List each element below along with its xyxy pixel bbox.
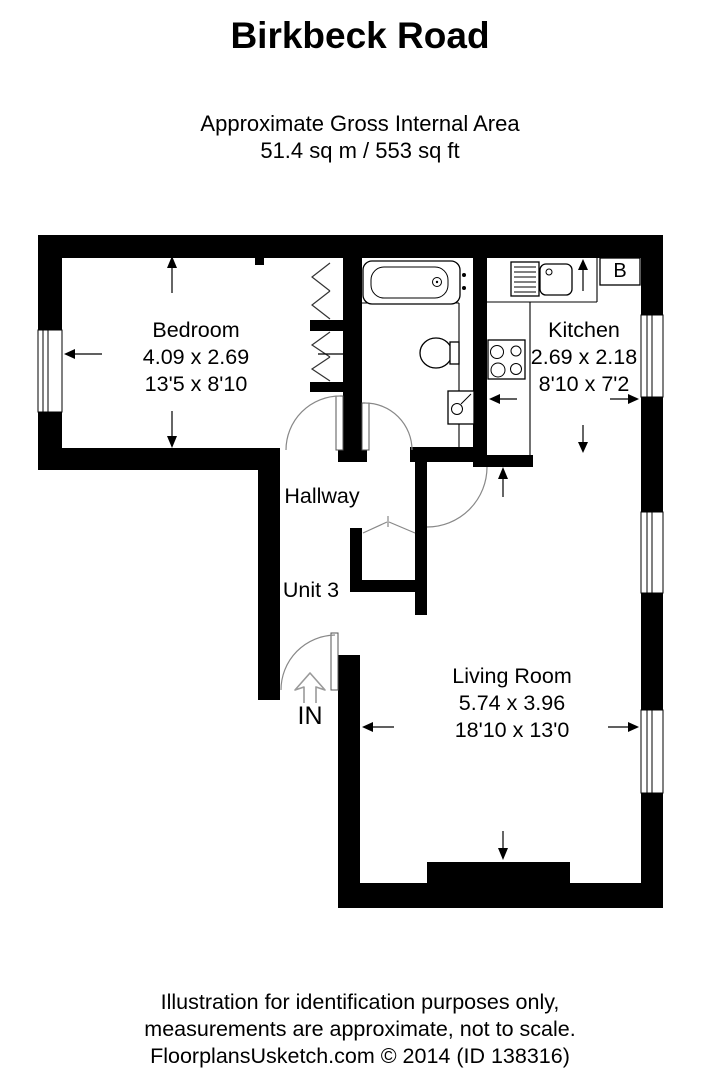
bedroom-metric: 4.09 x 2.69 <box>143 345 249 369</box>
toilet-bowl <box>420 338 452 368</box>
bathtub-drain-dot <box>436 281 438 283</box>
wall-hall-living-bar <box>487 455 533 467</box>
footer-line3: FloorplansUsketch.com © 2014 (ID 138316) <box>150 1044 570 1068</box>
chimney-breast <box>427 862 570 883</box>
boiler-label: B <box>613 260 626 282</box>
wall-right-mid1 <box>641 397 663 512</box>
wall-nub <box>255 257 264 265</box>
kitchen-sink <box>540 264 572 295</box>
wall-living-left <box>338 655 360 903</box>
wall-corridor-left <box>258 470 280 700</box>
room-labels: Bedroom 4.09 x 2.69 13'5 x 8'10 Kitchen … <box>143 318 637 742</box>
wall-right-mid2 <box>641 593 663 710</box>
footer: Illustration for identification purposes… <box>144 990 575 1068</box>
wall-bedroom-bottom <box>38 448 280 470</box>
wall-bottom <box>338 883 663 908</box>
living-imperial: 18'10 x 13'0 <box>455 718 570 742</box>
living-name: Living Room <box>452 664 572 688</box>
kitchen-name: Kitchen <box>548 318 620 342</box>
wall-cupboard-right <box>415 455 427 615</box>
closet-bifold-lower <box>312 332 330 381</box>
bedroom-imperial: 13'5 x 8'10 <box>145 372 248 396</box>
area-value: 51.4 sq m / 553 sq ft <box>260 138 459 163</box>
entrance-label: IN <box>298 702 323 730</box>
toilet-cistern <box>450 342 459 364</box>
footer-line2: measurements are approximate, not to sca… <box>144 1017 575 1041</box>
wall-bathroom-right <box>473 257 487 467</box>
cupboard-doors <box>363 516 415 533</box>
bedroom-door-leaf <box>336 396 343 450</box>
footer-line1: Illustration for identification purposes… <box>161 990 560 1014</box>
wall-right-top <box>641 235 663 315</box>
floorplan-svg: Birkbeck Road Approximate Gross Internal… <box>0 0 720 1080</box>
bathtub-tap1 <box>462 273 466 277</box>
entrance-door-leaf <box>331 633 338 690</box>
bedroom-door-arc <box>286 396 340 450</box>
living-door-arc <box>427 467 487 527</box>
closet-bifold-upper <box>312 263 330 319</box>
wall-left-upper <box>38 235 62 330</box>
area-caption: Approximate Gross Internal Area <box>200 111 520 136</box>
bathroom-door-arc <box>365 403 412 450</box>
bedroom-name: Bedroom <box>152 318 239 342</box>
wall-closet-stub-upper <box>310 320 343 331</box>
bathtub-tap2 <box>462 286 466 290</box>
page-title: Birkbeck Road <box>230 15 489 56</box>
entrance-door-arc <box>281 635 335 690</box>
bathroom-door-leaf <box>362 403 369 450</box>
kitchen-imperial: 8'10 x 7'2 <box>539 372 630 396</box>
floorplan-page: Birkbeck Road Approximate Gross Internal… <box>0 0 720 1080</box>
living-metric: 5.74 x 3.96 <box>459 691 565 715</box>
entrance-arrow-icon <box>295 673 325 703</box>
wall-closet-stub-lower <box>310 382 343 392</box>
bathroom-fixtures <box>363 261 474 424</box>
unit-name: Unit 3 <box>283 578 339 602</box>
kitchen-metric: 2.69 x 2.18 <box>531 345 637 369</box>
hallway-name: Hallway <box>284 484 360 508</box>
wall-top <box>38 235 663 258</box>
bedroom-window <box>38 330 62 412</box>
